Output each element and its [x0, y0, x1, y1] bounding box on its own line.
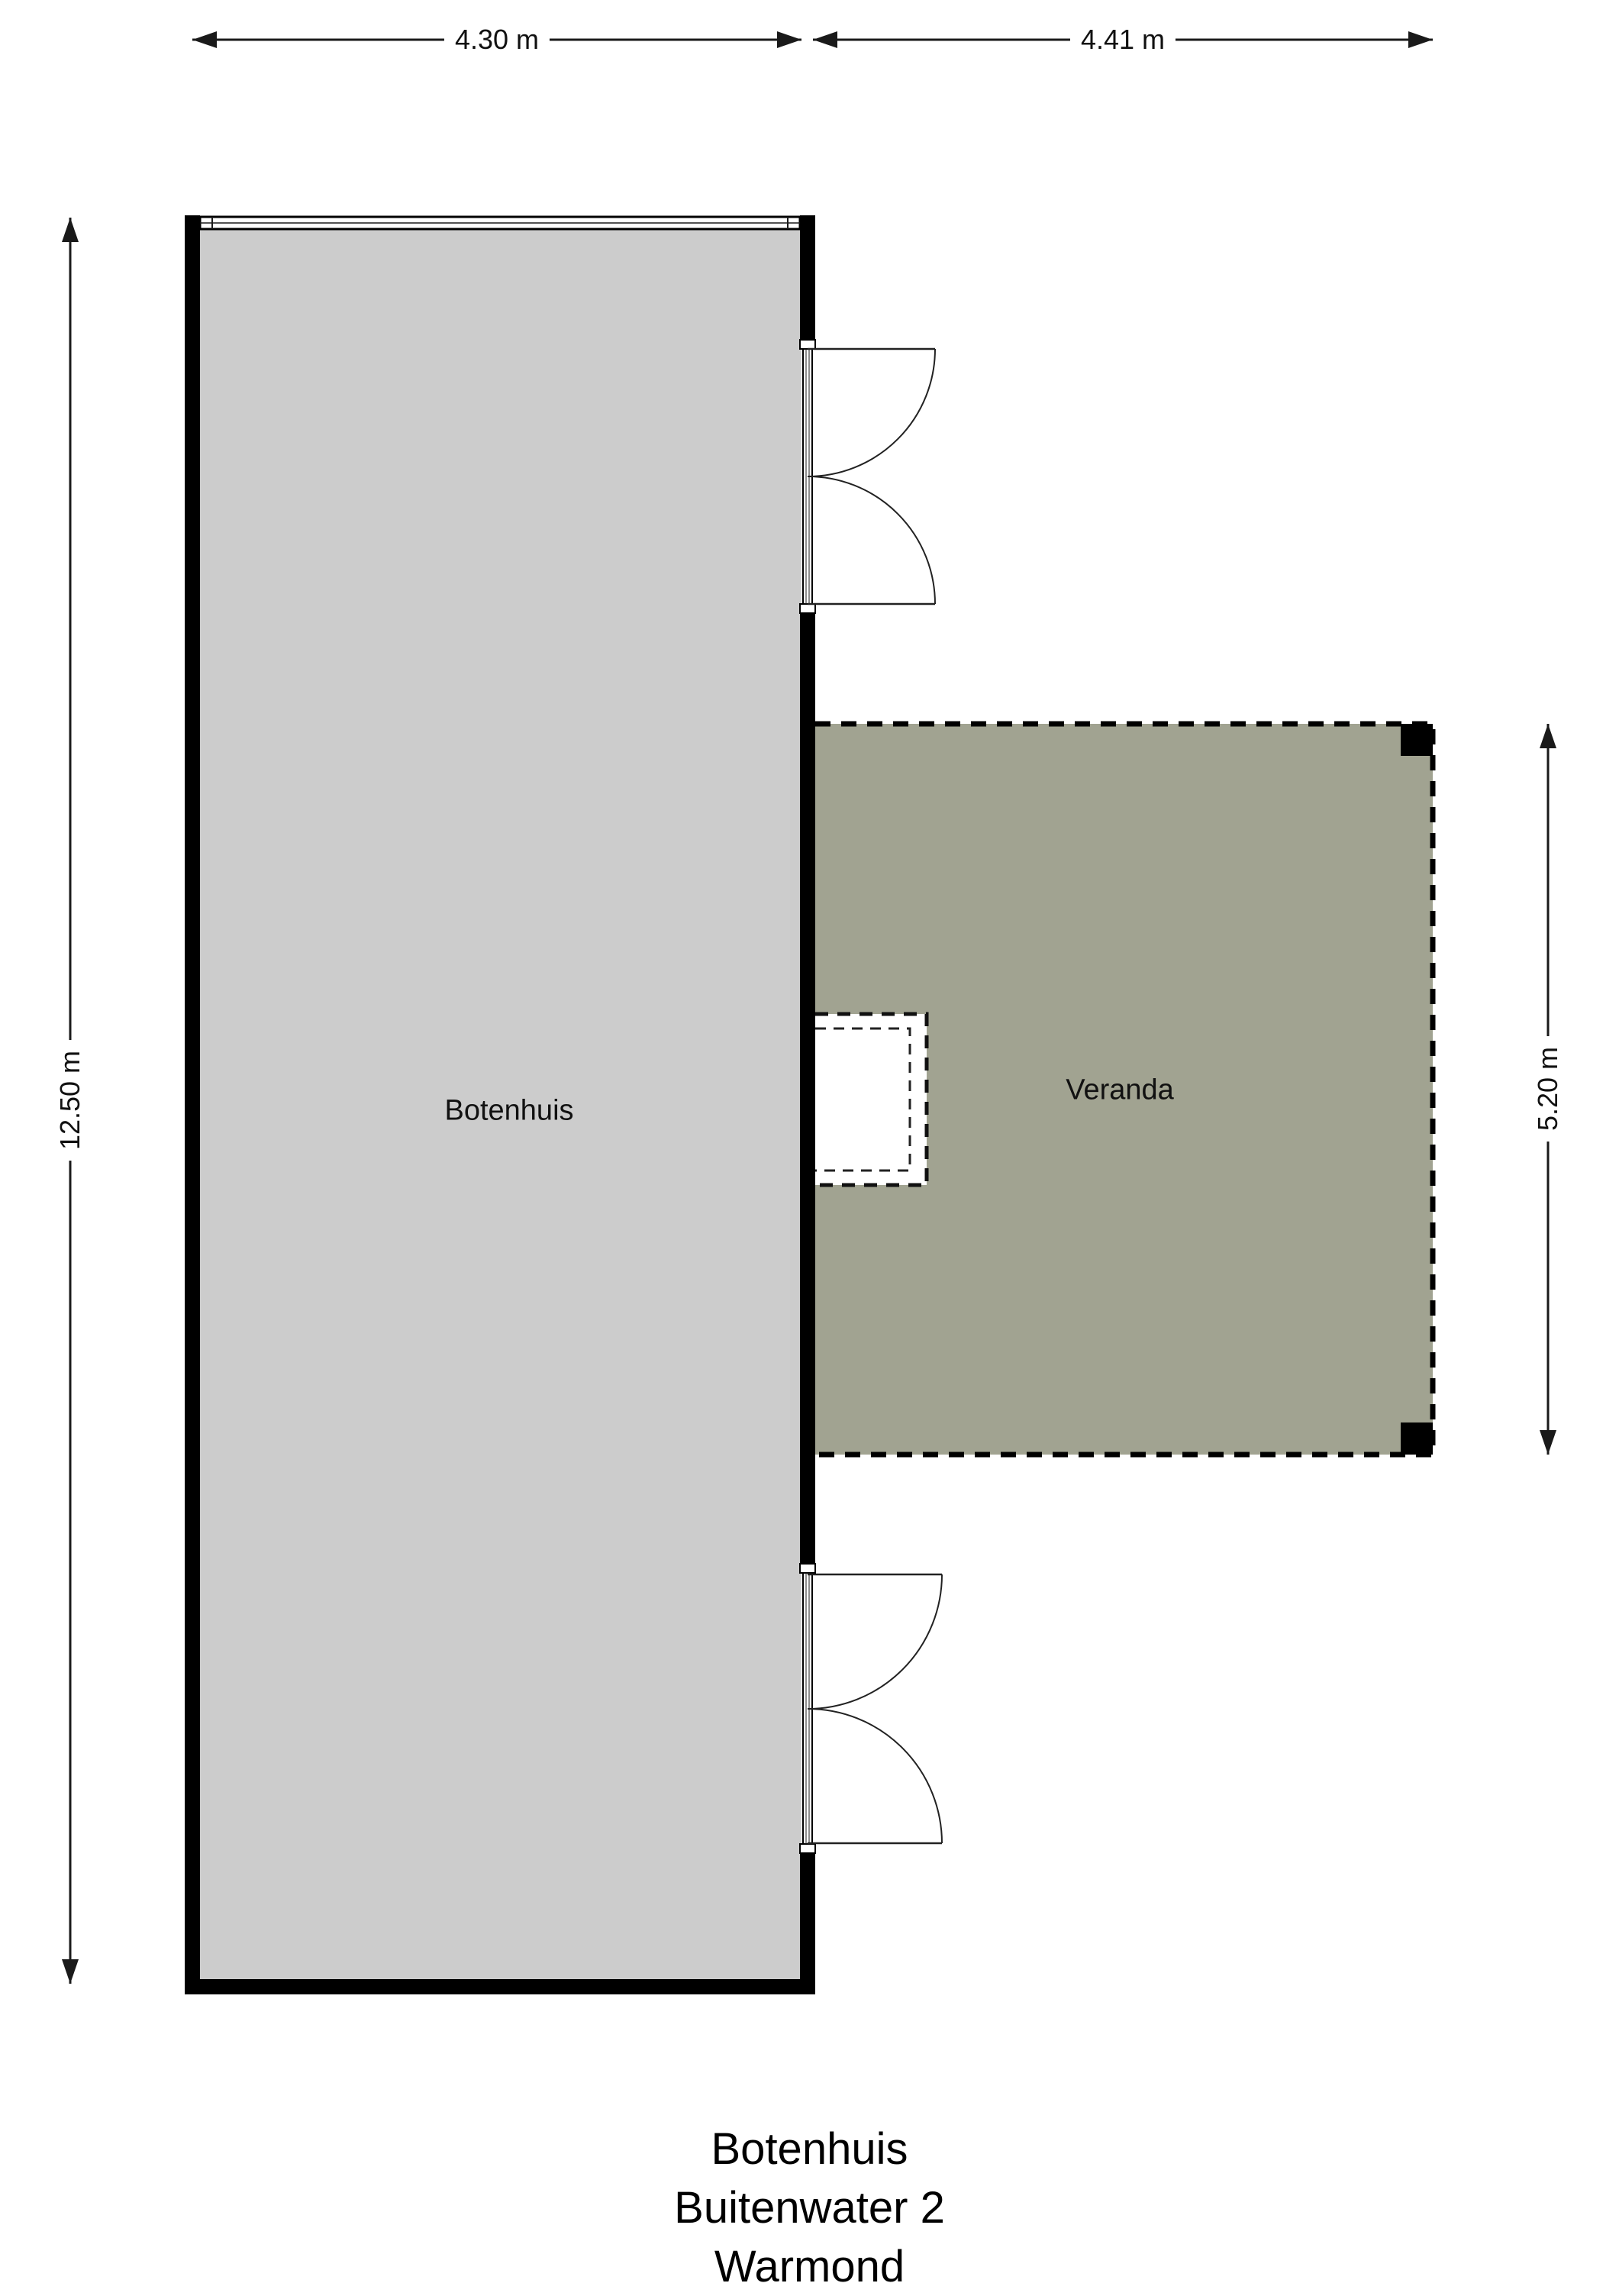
dimension-label-veranda-width: 4.41 m	[1070, 22, 1176, 57]
arrow-right-icon	[777, 31, 801, 48]
arrow-down-icon	[62, 1959, 79, 1984]
wall-right-top	[800, 215, 815, 340]
door-jamb	[800, 340, 815, 349]
window-band-top	[200, 217, 800, 229]
title-line-building: Botenhuis	[0, 2120, 1619, 2178]
door-swing-arc	[808, 1574, 942, 1709]
room-label-veranda: Veranda	[1066, 1074, 1174, 1107]
arrow-right-icon	[1408, 31, 1433, 48]
floorplan-drawing	[0, 0, 1619, 2291]
title-line-address: Buitenwater 2	[0, 2178, 1619, 2237]
wall-bottom	[185, 1979, 815, 1994]
wall-left	[185, 215, 200, 1994]
door-swing-arc	[808, 1709, 942, 1843]
wall-right-middle	[800, 613, 815, 1564]
double-door-bottom	[803, 1573, 942, 1844]
door-jamb	[800, 1564, 815, 1573]
room-label-botenhuis: Botenhuis	[444, 1095, 573, 1128]
door-jamb	[800, 604, 815, 613]
wall-right-bottom	[800, 1853, 815, 1994]
veranda-post-top-right	[1401, 724, 1433, 756]
arrow-down-icon	[1540, 1430, 1556, 1455]
arrow-left-icon	[192, 31, 217, 48]
veranda-post-bottom-right	[1401, 1422, 1433, 1455]
dimension-label-veranda-height: 5.20 m	[1530, 1036, 1566, 1142]
floorplan-canvas: 4.30 m 4.41 m 12.50 m 5.20 m Botenhuis V…	[0, 0, 1619, 2291]
plan-title-block: Botenhuis Buitenwater 2 Warmond	[0, 2120, 1619, 2296]
arrow-left-icon	[813, 31, 837, 48]
dimension-label-botenhuis-height: 12.50 m	[53, 1040, 88, 1161]
door-jamb	[800, 1844, 815, 1853]
door-swing-arc	[808, 476, 935, 604]
arrow-up-icon	[1540, 724, 1556, 748]
hatch-opening	[815, 1014, 927, 1185]
door-swing-arc	[808, 349, 935, 476]
arrow-up-icon	[62, 218, 79, 242]
title-line-city: Warmond	[0, 2237, 1619, 2296]
double-door-top	[803, 349, 935, 604]
dimension-label-botenhuis-width: 4.30 m	[444, 22, 550, 57]
